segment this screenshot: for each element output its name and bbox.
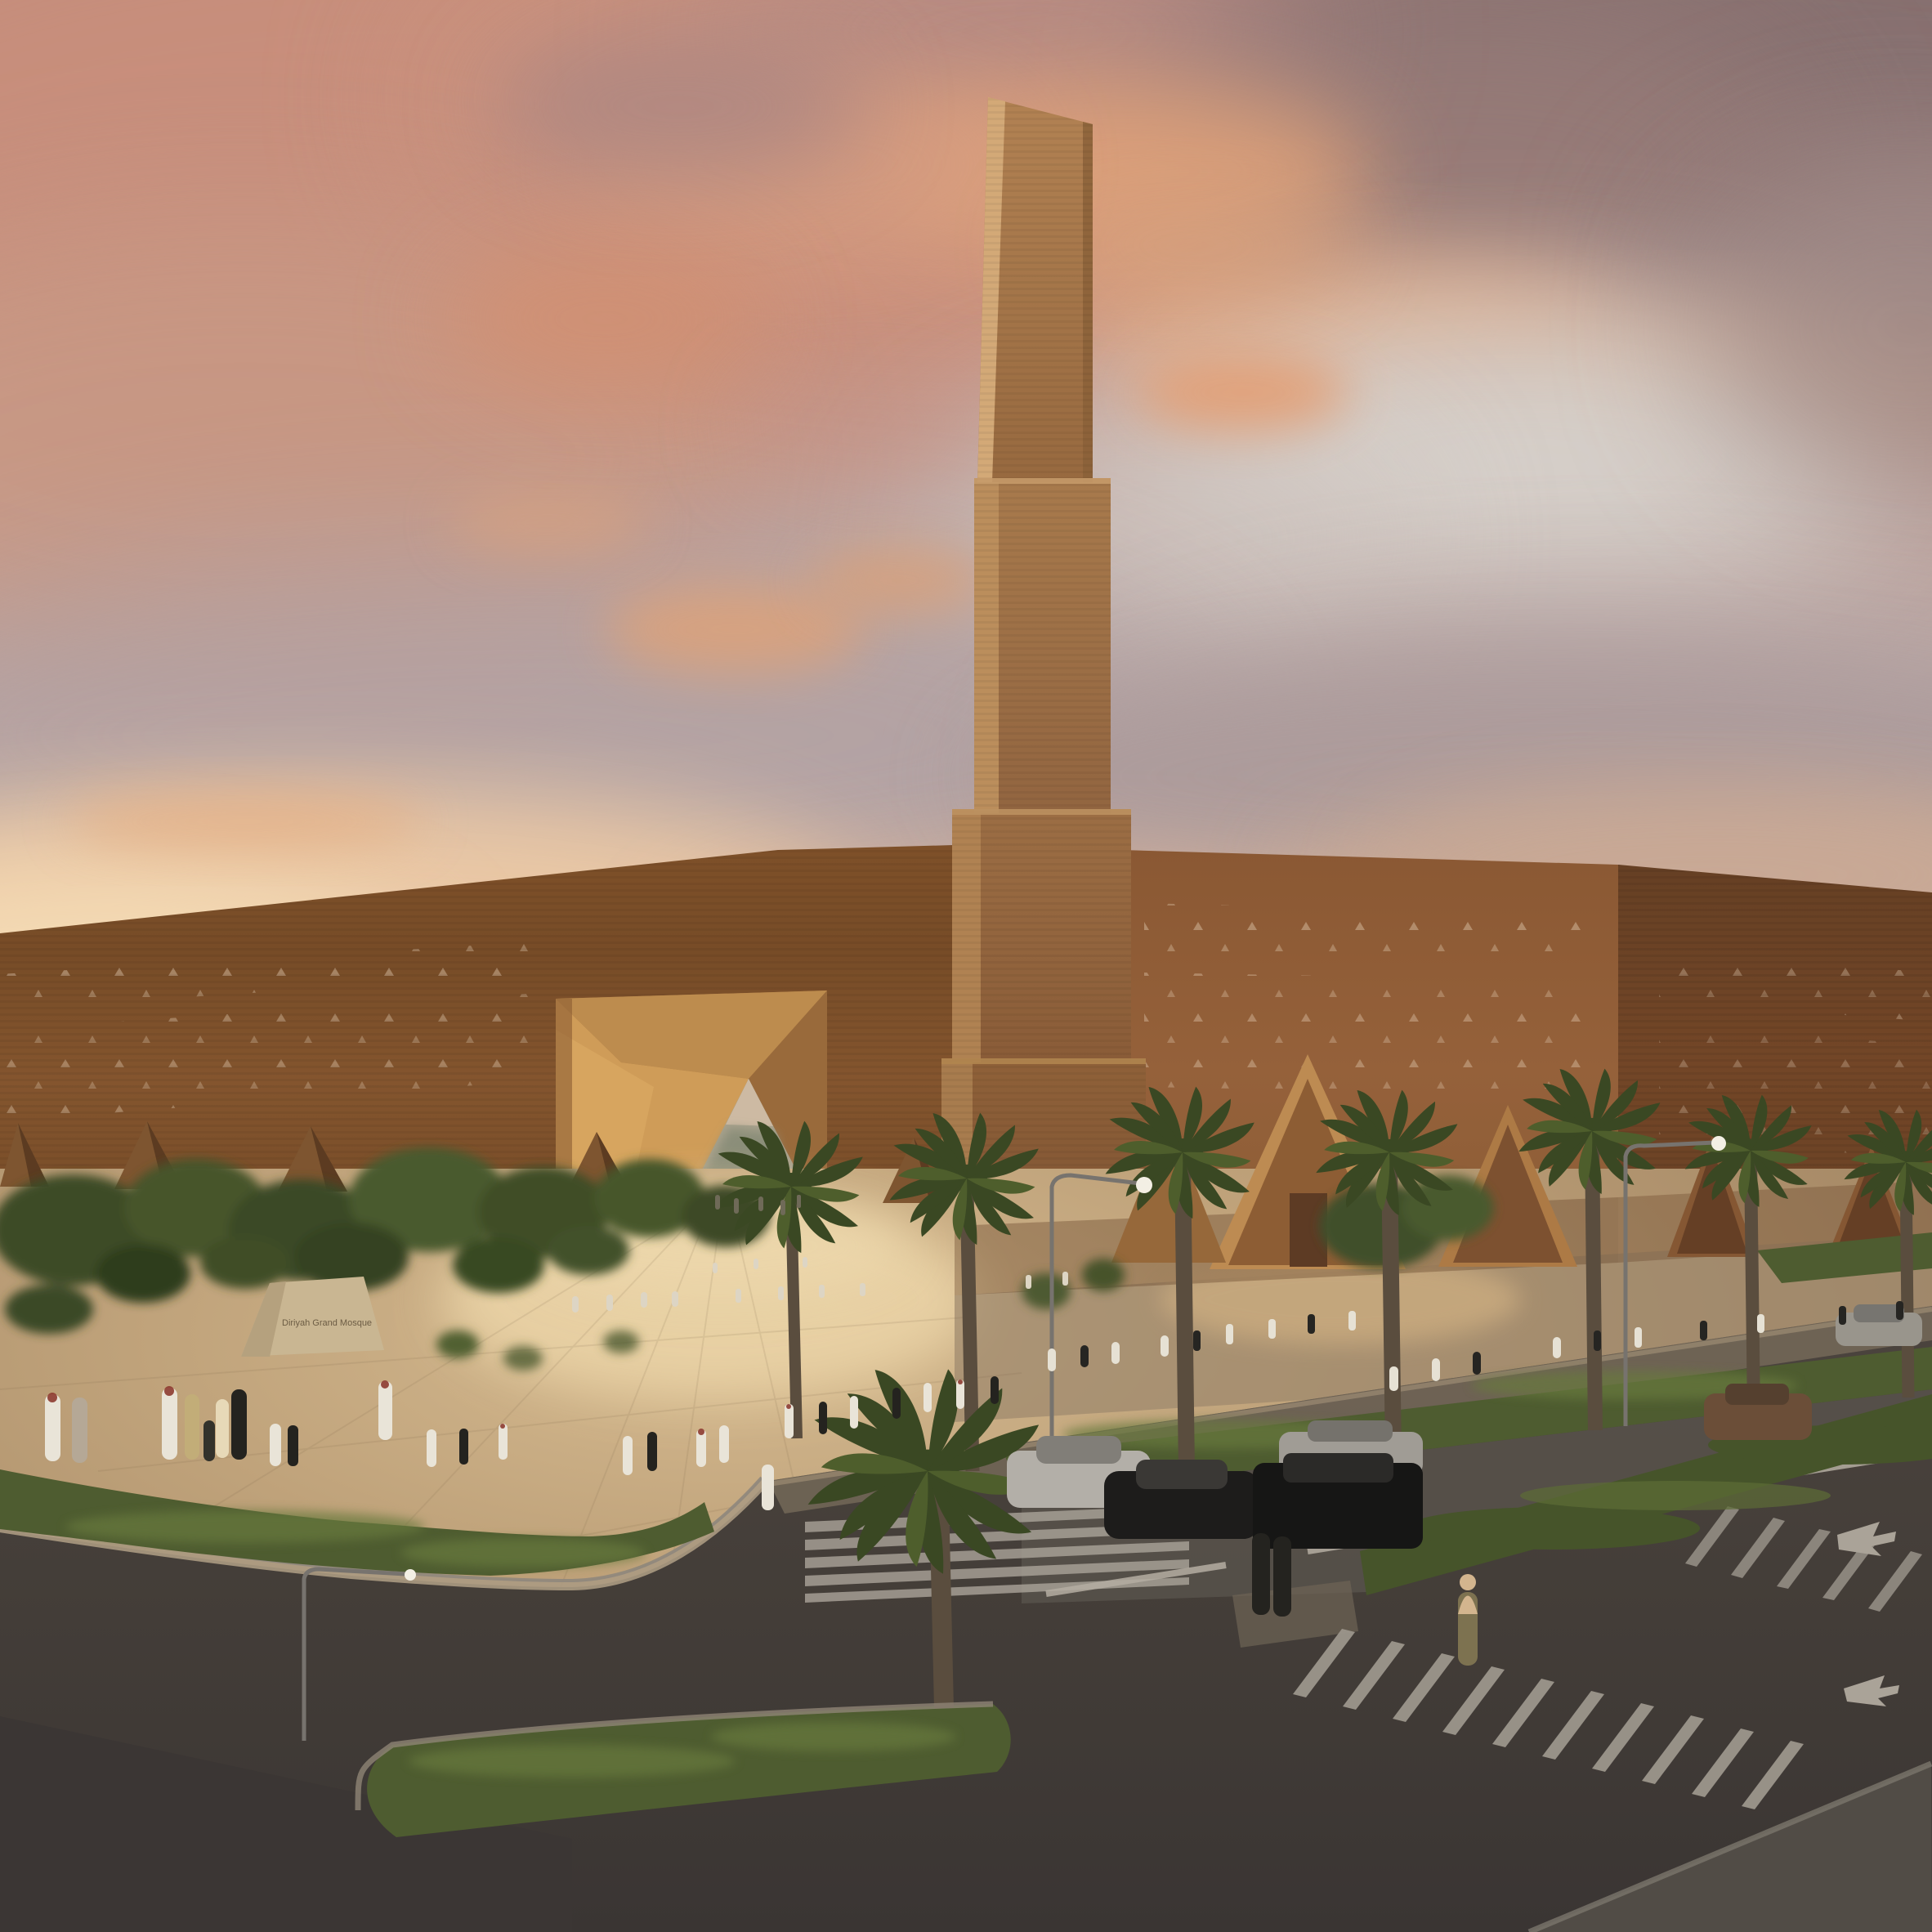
svg-text:Diriyah Grand Mosque: Diriyah Grand Mosque <box>282 1318 372 1328</box>
